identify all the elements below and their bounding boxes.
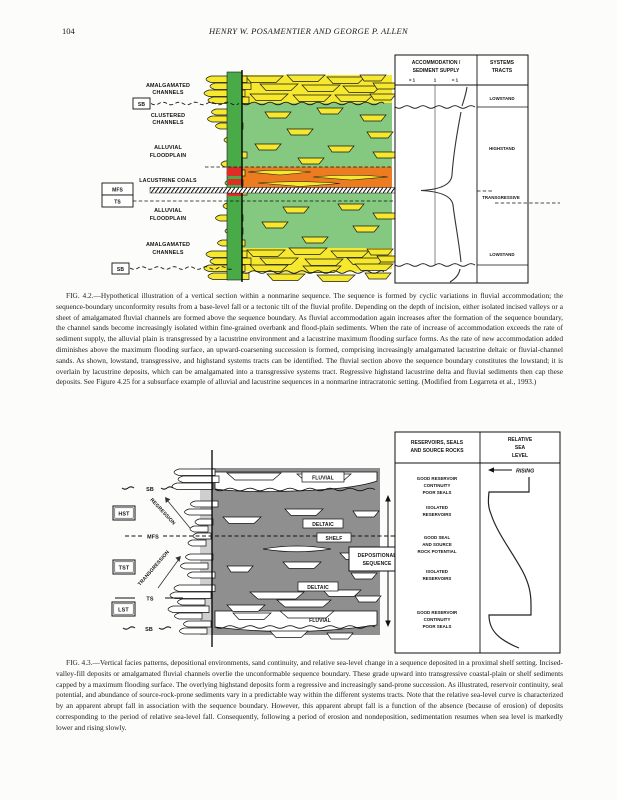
svg-text:CHANNELS: CHANNELS <box>152 90 183 96</box>
label-amalgamated-channels-top: AMALGAMATED <box>146 83 190 89</box>
systems-tracts-header: SYSTEMS <box>490 60 515 66</box>
tract-transgressive: TRANSGRESSIVE <box>482 195 520 200</box>
svg-text:CONTINUITY: CONTINUITY <box>424 617 451 622</box>
svg-text:SEA: SEA <box>515 445 526 451</box>
fig42-vertical-section-strip <box>227 70 242 282</box>
figure-4-3-caption: FIG. 4.3.—Vertical facies patterns, depo… <box>56 658 563 734</box>
label-fluvial-bottom: FLUVIAL <box>309 618 331 624</box>
svg-text:POOR SEALS: POOR SEALS <box>423 490 452 495</box>
svg-text:GOOD RESERVOIR: GOOD RESERVOIR <box>417 610 458 615</box>
tick-lt-1: < 1 <box>452 78 459 83</box>
sb-tag-bottom: SB <box>117 267 124 273</box>
svg-text:ISOLATED: ISOLATED <box>426 505 448 510</box>
svg-text:RESERVOIRS: RESERVOIRS <box>423 512 452 517</box>
svg-text:LEVEL: LEVEL <box>512 453 528 459</box>
tract-lowstand-bottom: LOWSTAND <box>489 252 514 257</box>
svg-text:POOR SEALS: POOR SEALS <box>423 624 452 629</box>
mfs-label: MFS <box>147 535 159 541</box>
fig43-reservoir-table: RESERVOIRS, SEALS AND SOURCE ROCKS RELAT… <box>395 432 560 653</box>
svg-text:ROCK POTENTIAL: ROCK POTENTIAL <box>417 549 456 554</box>
label-alluvial-floodplain-upper: ALLUVIAL <box>154 145 182 151</box>
svg-text:CHANNELS: CHANNELS <box>152 120 183 126</box>
svg-text:CHANNELS: CHANNELS <box>152 250 183 256</box>
sea-level-header: RELATIVE <box>508 437 533 443</box>
svg-text:ISOLATED: ISOLATED <box>426 569 448 574</box>
svg-text:RESERVOIRS: RESERVOIRS <box>423 576 452 581</box>
running-head: HENRY W. POSAMENTIER AND GEORGE P. ALLEN <box>0 26 617 36</box>
svg-text:FLOODPLAIN: FLOODPLAIN <box>150 216 187 222</box>
svg-text:GOOD SEAL: GOOD SEAL <box>424 535 451 540</box>
svg-text:AND SOURCE ROCKS: AND SOURCE ROCKS <box>410 448 464 454</box>
figure-4-2-diagram: AMALGAMATED CHANNELS CLUSTERED CHANNELS … <box>55 50 567 290</box>
fig42-accommodation-table: ACCOMMODATION / SEDIMENT SUPPLY > 1 1 < … <box>395 55 560 283</box>
svg-text:CONTINUITY: CONTINUITY <box>424 483 451 488</box>
svg-text:GOOD RESERVOIR: GOOD RESERVOIR <box>417 476 458 481</box>
ts-tag: TS <box>114 200 121 206</box>
svg-text:SEDIMENT SUPPLY: SEDIMENT SUPPLY <box>413 68 460 74</box>
reservoirs-header: RESERVOIRS, SEALS <box>411 440 464 446</box>
label-deltaic-upper: DELTAIC <box>312 522 334 528</box>
svg-text:AND SOURCE: AND SOURCE <box>422 542 452 547</box>
sb-tag-top: SB <box>138 102 145 108</box>
label-clustered-channels: CLUSTERED <box>151 113 185 119</box>
figure-4-3-diagram: FLUVIAL DELTAIC SHELF DELTAIC FLUVIAL SB… <box>55 425 567 670</box>
svg-text:FLOODPLAIN: FLOODPLAIN <box>150 153 187 159</box>
sb-label-top: SB <box>146 487 154 493</box>
depositional-sequence-label: DEPOSITIONAL <box>358 553 397 559</box>
lst-label: LST <box>118 608 129 614</box>
accommodation-header: ACCOMMODATION / <box>412 60 461 66</box>
label-shelf: SHELF <box>326 536 343 542</box>
tract-highstand: HIGHSTAND <box>489 146 515 151</box>
mfs-tag: MFS <box>112 188 123 194</box>
hst-label: HST <box>118 512 130 518</box>
label-amalgamated-channels-bottom: AMALGAMATED <box>146 242 190 248</box>
label-lacustrine-coals: LACUSTRINE COALS <box>139 178 197 184</box>
regression-label: REGRESSION <box>149 497 177 526</box>
ts-label: TS <box>146 597 153 603</box>
label-alluvial-floodplain-lower: ALLUVIAL <box>154 208 182 214</box>
tract-lowstand-top: LOWSTAND <box>489 96 514 101</box>
svg-text:SEQUENCE: SEQUENCE <box>363 561 392 567</box>
svg-text:TRACTS: TRACTS <box>492 68 513 74</box>
tst-label: TST <box>119 566 130 572</box>
transgression-label: TRANSGRESSION <box>137 549 171 587</box>
scanned-paper-page: 104 HENRY W. POSAMENTIER AND GEORGE P. A… <box>0 0 617 800</box>
sb-label-bottom: SB <box>145 627 153 633</box>
figure-4-2-caption: FIG. 4.2.—Hypothetical illustration of a… <box>56 291 563 388</box>
label-fluvial-top: FLUVIAL <box>312 476 334 482</box>
fig42-surface-tags: SB MFS TS SB <box>102 98 150 274</box>
label-deltaic-lower: DELTAIC <box>307 585 329 591</box>
tick-gt-1: > 1 <box>409 78 416 83</box>
rising-label: RISING <box>516 468 534 474</box>
